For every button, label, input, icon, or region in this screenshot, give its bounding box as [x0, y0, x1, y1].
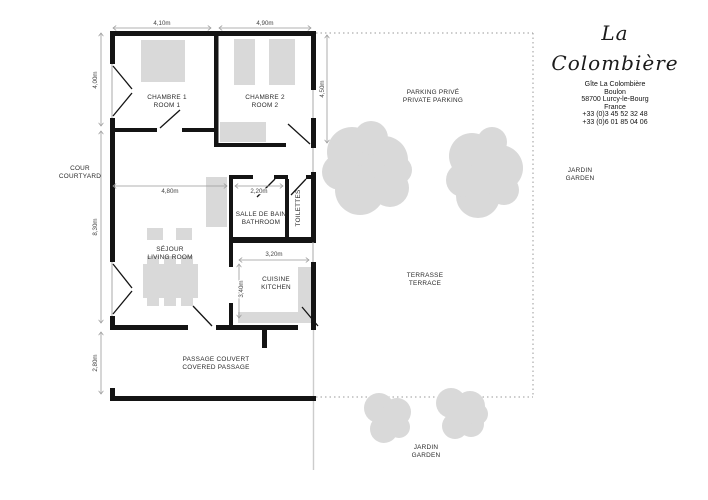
kitchen-counter-right — [298, 267, 312, 313]
label-garden-bottom-en: GARDEN — [412, 452, 441, 459]
wall-room1-bottom-1 — [110, 128, 157, 132]
door-living-2 — [113, 291, 132, 314]
wall-toilet-partition — [285, 179, 289, 241]
wall-passage-pillar — [262, 330, 267, 348]
door-courtyard-1 — [113, 66, 132, 89]
bed-room2-left — [234, 39, 255, 85]
door-living-1 — [113, 264, 132, 288]
wall-passage-bottom — [110, 396, 316, 401]
dining-table — [143, 264, 198, 298]
armchair-right — [176, 228, 192, 240]
logo-contact-block: La Colombière Gîte La Colombière Boulon … — [538, 18, 692, 127]
label-parking-fr: PARKING PRIVÉ — [407, 87, 460, 96]
tree-large-left — [322, 121, 412, 215]
floor-plan-page: 4,10m 4,90m 4,00m 8,30m 2,80m 4,50m 4,80… — [0, 0, 708, 500]
label-garden-right-fr: JARDIN — [568, 167, 593, 174]
contact-phone-2: +33 (0)6 01 85 04 06 — [538, 119, 692, 127]
label-kitchen-en: KITCHEN — [261, 284, 291, 291]
contact-phone-1: +33 (0)3 45 52 32 48 — [538, 111, 692, 119]
dim-passage-depth: 2,80m — [92, 354, 99, 371]
label-passage-fr: PASSAGE COUVERT — [183, 356, 250, 363]
label-chambre2-fr: CHAMBRE 2 — [245, 94, 285, 101]
logo-script-name: La Colombière — [538, 18, 692, 78]
door-room1 — [160, 110, 180, 128]
dim-room1-width: 4,10m — [153, 20, 170, 27]
label-chambre1-en: ROOM 1 — [154, 102, 181, 109]
label-garden-right-en: GARDEN — [566, 175, 595, 182]
cupboard-living — [206, 177, 227, 227]
contact-address-2: 58700 Lurcy-le-Bourg — [538, 96, 692, 104]
wall-bathroom-top-3 — [306, 175, 316, 179]
wall-bedroom-divider — [214, 31, 219, 145]
wardrobe-room2 — [220, 122, 266, 142]
label-chambre1-fr: CHAMBRE 1 — [147, 94, 187, 101]
label-bathroom-fr: SALLE DE BAIN — [236, 211, 287, 218]
wall-kitchen-left-1 — [229, 243, 233, 267]
label-bathroom-en: BATHROOM — [242, 219, 280, 226]
label-terrace-fr: TERRASSE — [407, 272, 443, 279]
tree-large-right — [446, 127, 523, 218]
contact-address-1: Boulon — [538, 89, 692, 97]
contact-address-3: France — [538, 104, 692, 112]
label-passage-en: COVERED PASSAGE — [182, 364, 249, 371]
wall-room1-bottom-2 — [182, 128, 218, 132]
wall-left-2 — [110, 118, 115, 262]
label-living-fr: SÉJOUR — [156, 244, 184, 253]
wall-right-1 — [311, 31, 316, 90]
label-terrace-en: TERRACE — [409, 280, 441, 287]
bed-room2-right — [269, 39, 295, 85]
wall-bottom-2 — [216, 325, 298, 330]
label-toilets-fr: TOILETTES — [295, 190, 302, 227]
label-courtyard-en: COURTYARD — [59, 173, 101, 180]
dim-bathroom-width: 2,20m — [250, 188, 267, 195]
armchair-left — [147, 228, 163, 240]
dim-room1-depth: 4,00m — [92, 71, 99, 88]
wall-bath-kitchen — [229, 237, 316, 243]
door-room2 — [288, 124, 310, 144]
tree-small-left — [364, 393, 411, 443]
wall-top — [110, 31, 316, 36]
dim-kitchen-depth: 3,40m — [238, 280, 245, 297]
property-boundary — [316, 33, 533, 397]
wall-passage-stub — [110, 388, 115, 401]
label-courtyard-fr: COUR — [70, 165, 90, 172]
dim-living-depth: 8,30m — [92, 218, 99, 235]
door-courtyard-2 — [113, 93, 132, 116]
dim-room2-width: 4,90m — [256, 20, 273, 27]
contact-block: Gîte La Colombière Boulon 58700 Lurcy-le… — [538, 81, 692, 127]
label-chambre2-en: ROOM 2 — [252, 102, 279, 109]
label-garden-bottom-fr: JARDIN — [414, 444, 439, 451]
dim-living-width: 4,80m — [161, 188, 178, 195]
label-kitchen-fr: CUISINE — [262, 276, 290, 283]
label-parking-en: PRIVATE PARKING — [403, 97, 463, 104]
wall-bathroom-left — [229, 175, 233, 237]
wall-right-3 — [311, 172, 316, 242]
chair — [181, 297, 193, 306]
chair — [164, 297, 176, 306]
bed-room1 — [141, 40, 185, 82]
wall-right-2 — [311, 118, 316, 148]
wall-left-1 — [110, 31, 115, 64]
chair — [147, 297, 159, 306]
wall-room2-bottom — [214, 143, 286, 147]
dim-kitchen-width: 3,20m — [265, 251, 282, 258]
contact-name: Gîte La Colombière — [538, 81, 692, 89]
door-passage — [193, 306, 212, 326]
kitchen-counter-bottom — [238, 312, 312, 323]
label-living-en: LIVING ROOM — [147, 254, 192, 261]
wall-kitchen-left-2 — [229, 303, 233, 327]
tree-small-right — [436, 388, 488, 439]
wall-bottom-1 — [110, 325, 188, 330]
dim-room2-depth: 4,50m — [319, 80, 326, 97]
wall-bathroom-top-2 — [274, 175, 288, 179]
